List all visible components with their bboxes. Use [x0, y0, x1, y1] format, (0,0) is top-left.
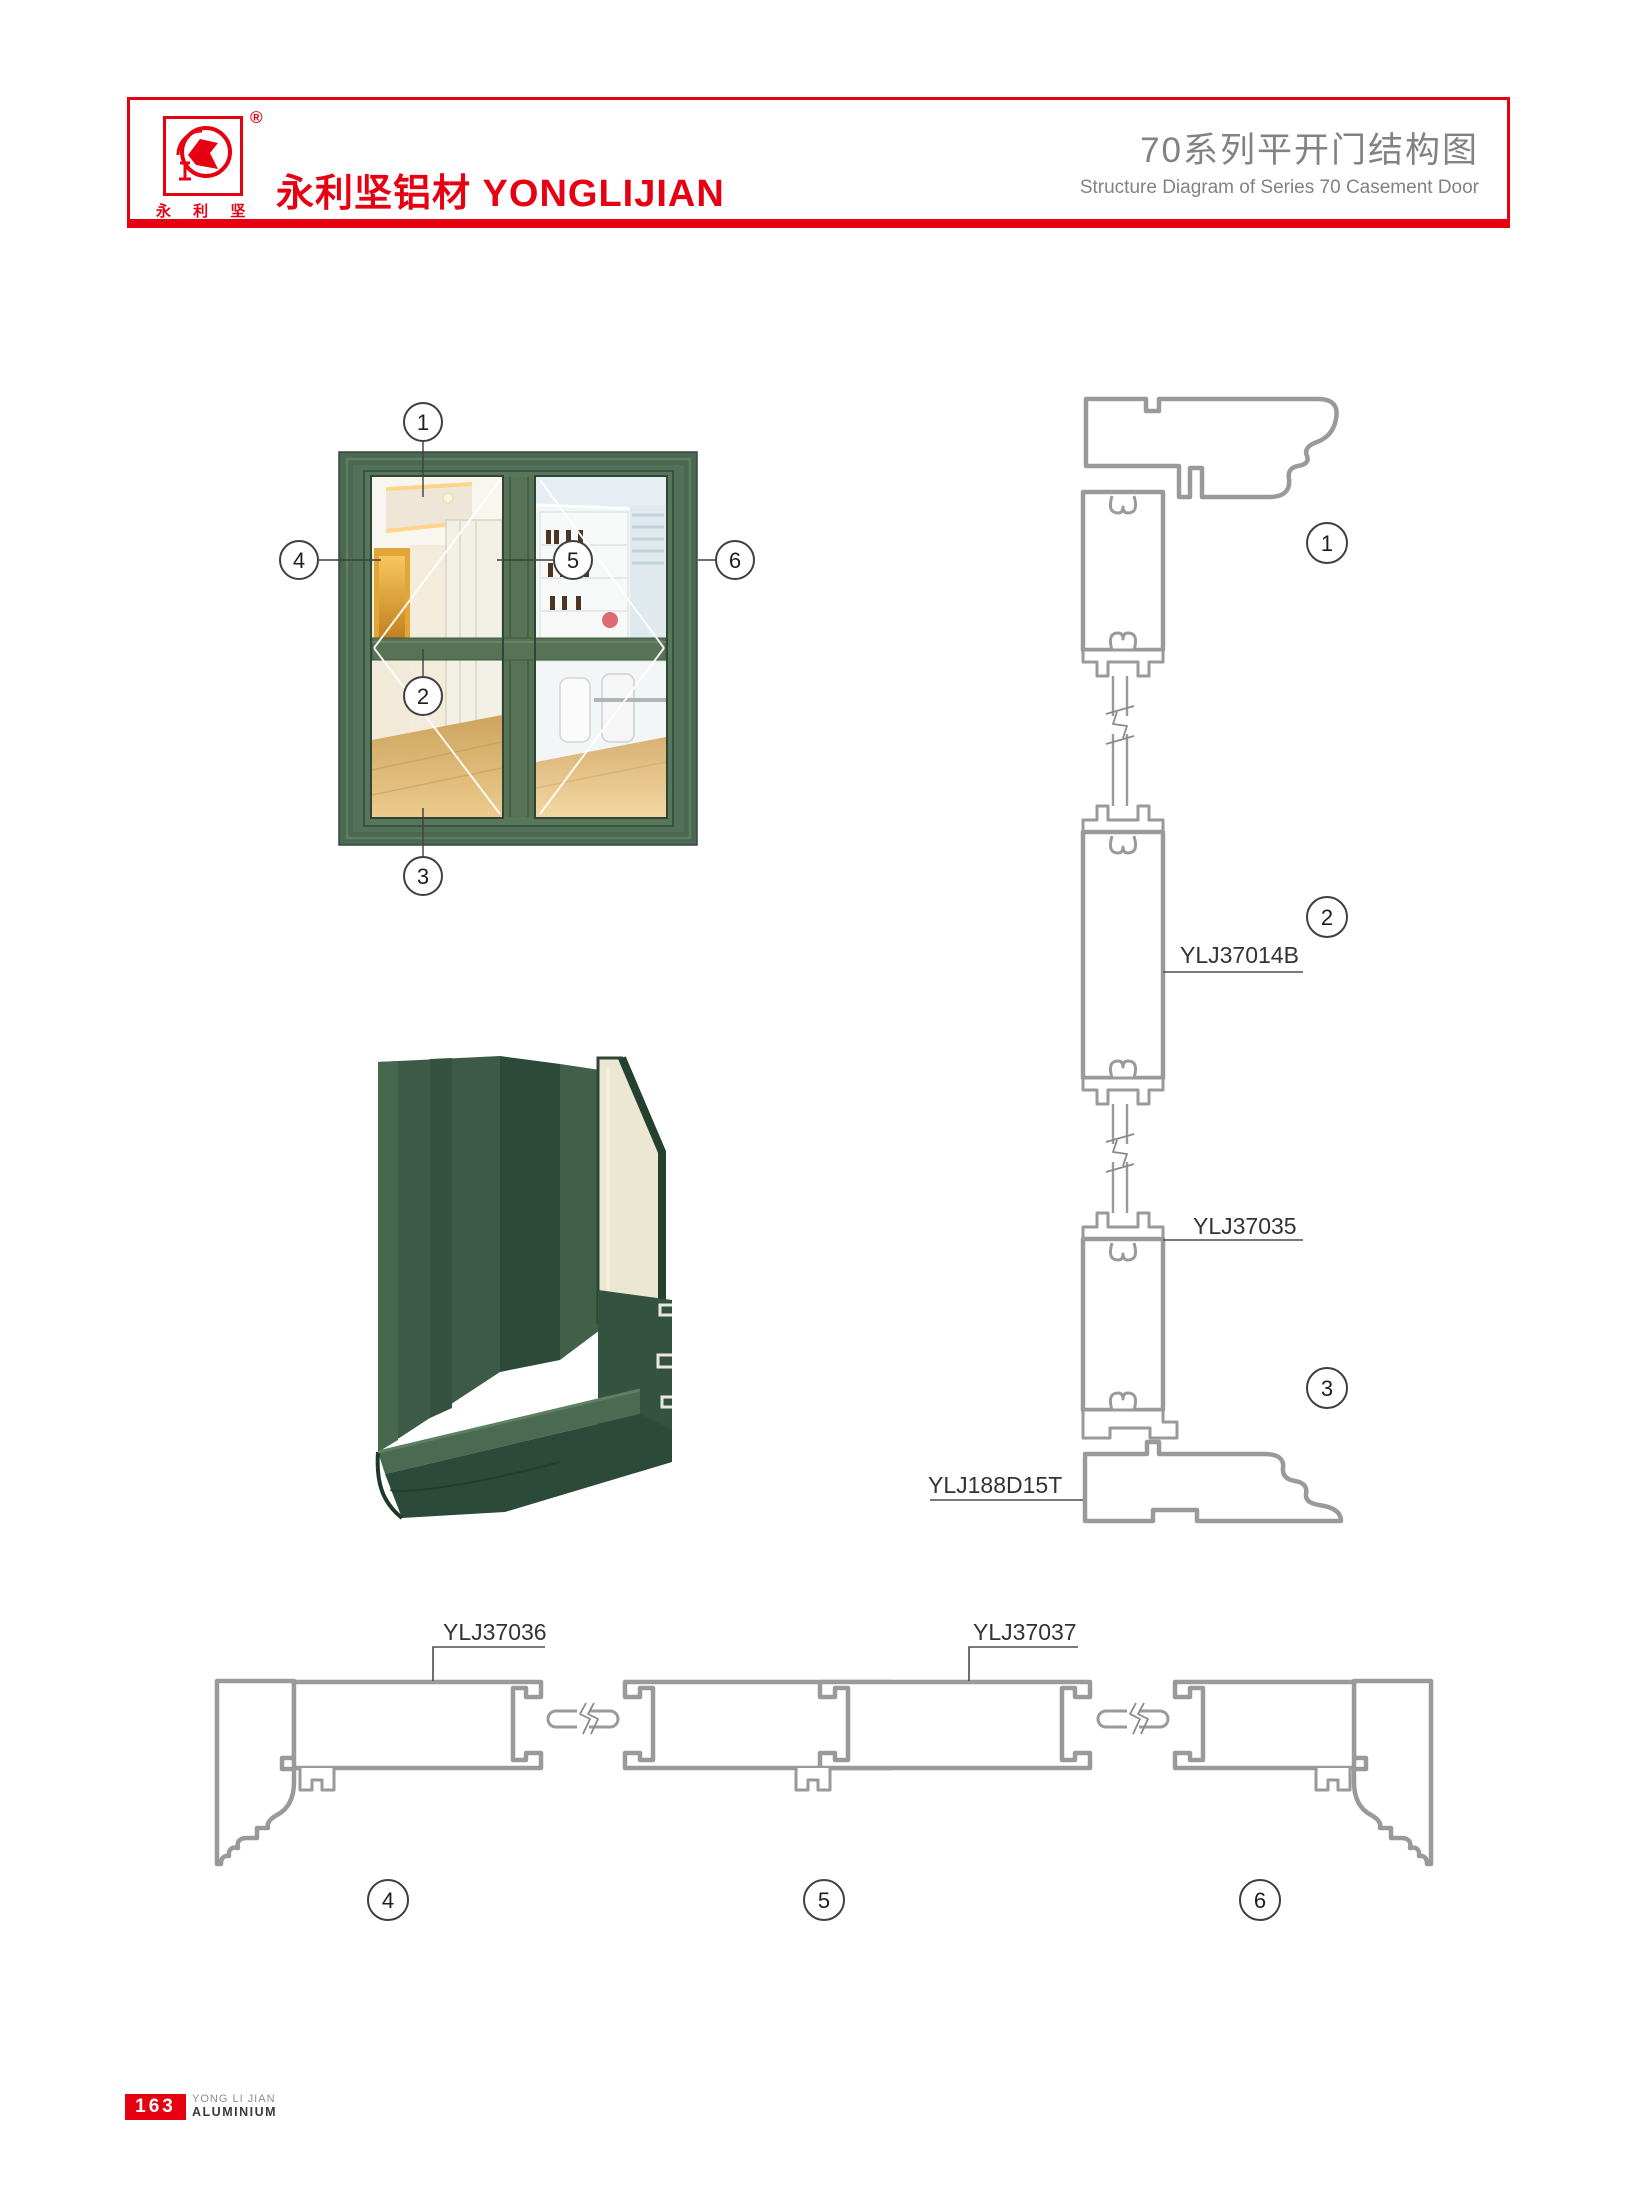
catalog-page: 永 利 坚 ® 永利坚铝材 YONGLIJIAN 70系列平开门结构图 Stru… [0, 0, 1635, 2203]
page-title: 70系列平开门结构图 [1080, 132, 1479, 171]
profile-3d-render [355, 1045, 685, 1525]
label-right-rail: YLJ37037 [973, 1619, 1077, 1645]
bottom-rail-profile [1083, 1213, 1177, 1438]
vertical-section-drawing: 1 2 3 YLJ37014B YLJ37035 YLJ188D15T [900, 385, 1370, 1560]
callout-5: 5 [567, 548, 579, 573]
callout-2: 2 [417, 684, 429, 709]
label-left-rail: YLJ37036 [443, 1619, 547, 1645]
callout-4: 4 [293, 548, 305, 573]
brand-logo [163, 116, 243, 196]
section-callout-6: 6 [1254, 1888, 1266, 1913]
section-callout-2: 2 [1321, 905, 1333, 930]
callout-6: 6 [729, 548, 741, 573]
brand-emblem-icon [166, 119, 240, 193]
page-number: 163 [135, 2096, 176, 2118]
corner-profile-render [378, 1056, 672, 1518]
horizontal-section-callouts: 4 5 6 [368, 1880, 1280, 1920]
brand-name: 永利坚铝材 YONGLIJIAN [276, 162, 725, 217]
callout-3: 3 [417, 864, 429, 889]
registered-trademark-icon: ® [250, 108, 263, 128]
vertical-section-callouts: 1 2 3 [1307, 523, 1347, 1408]
head-frame-profile [1086, 399, 1337, 497]
page-number-badge: 163 [125, 2094, 186, 2120]
page-header: 永 利 坚 ® 永利坚铝材 YONGLIJIAN 70系列平开门结构图 Stru… [127, 97, 1510, 228]
transom-profile [1083, 806, 1163, 1104]
horizontal-section-drawing: YLJ37036 YLJ37037 4 5 6 [200, 1600, 1450, 1930]
left-jamb-profile [217, 1681, 294, 1864]
logo-characters: 永 利 坚 [156, 200, 252, 221]
casement-door-photo-figure: 1 4 5 6 2 3 [270, 395, 770, 910]
glass-break-upper [1106, 676, 1134, 806]
section-callout-3: 3 [1321, 1376, 1333, 1401]
label-threshold: YLJ188D15T [928, 1472, 1062, 1498]
section-callout-4: 4 [382, 1888, 394, 1913]
page-title-block: 70系列平开门结构图 Structure Diagram of Series 7… [1080, 132, 1479, 199]
door-leaf-rails [294, 1682, 1354, 1790]
right-jamb-profile [1354, 1681, 1431, 1864]
label-bottom-rail: YLJ37035 [1193, 1213, 1297, 1239]
section-callout-5: 5 [818, 1888, 830, 1913]
callout-1: 1 [417, 410, 429, 435]
top-rail-profile [1083, 492, 1163, 676]
threshold-profile [1085, 1442, 1341, 1521]
label-transom: YLJ37014B [1180, 942, 1299, 968]
page-subtitle: Structure Diagram of Series 70 Casement … [1080, 177, 1479, 199]
glass-break-lower [1106, 1104, 1134, 1213]
footer-company-name: YONG LI JIAN [192, 2093, 276, 2105]
footer-company-industry: ALUMINIUM [192, 2105, 277, 2119]
section-callout-1: 1 [1321, 531, 1333, 556]
horizontal-section-labels: YLJ37036 YLJ37037 [433, 1619, 1078, 1681]
